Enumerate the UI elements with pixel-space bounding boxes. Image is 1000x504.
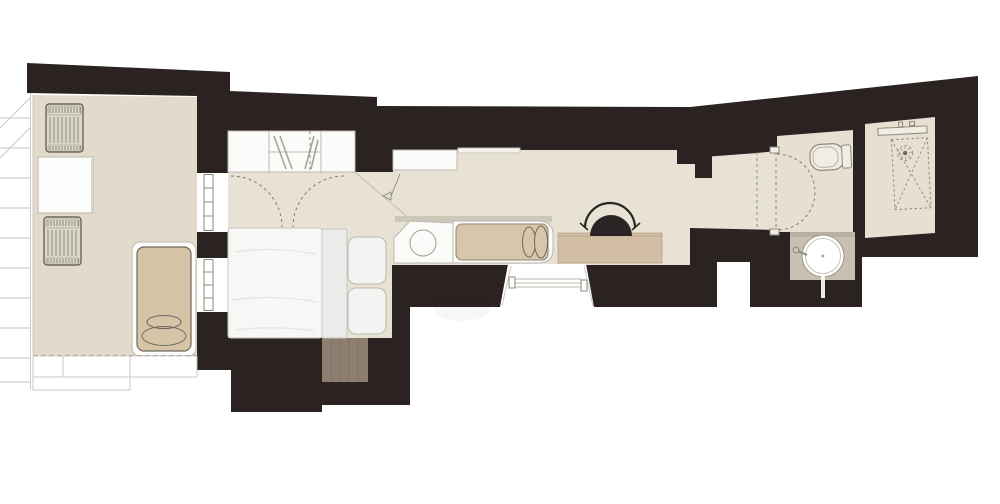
entry-step-wood	[322, 338, 368, 382]
floor-plan-canvas	[0, 0, 1000, 504]
double-bed	[228, 228, 386, 338]
window-terrace-upper	[197, 173, 228, 232]
daybed-bolster	[535, 226, 548, 258]
floor-plan-drawing	[0, 0, 1000, 504]
daybed	[453, 221, 553, 263]
shower-room-floor	[865, 117, 935, 238]
wall-niche-opening	[717, 262, 750, 307]
window-terrace-lower	[197, 258, 228, 312]
kitchen-shelf	[458, 148, 520, 153]
pillow-bottom	[348, 288, 386, 334]
outdoor-chair-bottom	[44, 217, 81, 265]
bed-runner	[322, 229, 347, 338]
pillow-top	[348, 237, 386, 284]
shadow	[434, 295, 490, 321]
bay-window	[500, 264, 594, 307]
toilet	[809, 143, 851, 171]
deck-stairs	[0, 88, 31, 390]
wc-floor	[777, 130, 853, 232]
sun-lounger	[132, 242, 196, 356]
outdoor-chair-top	[46, 104, 83, 152]
wardrobe	[228, 131, 355, 172]
daybed-bolster	[523, 227, 536, 257]
desk	[558, 233, 662, 263]
outdoor-table	[38, 157, 93, 213]
duvet	[228, 228, 322, 338]
